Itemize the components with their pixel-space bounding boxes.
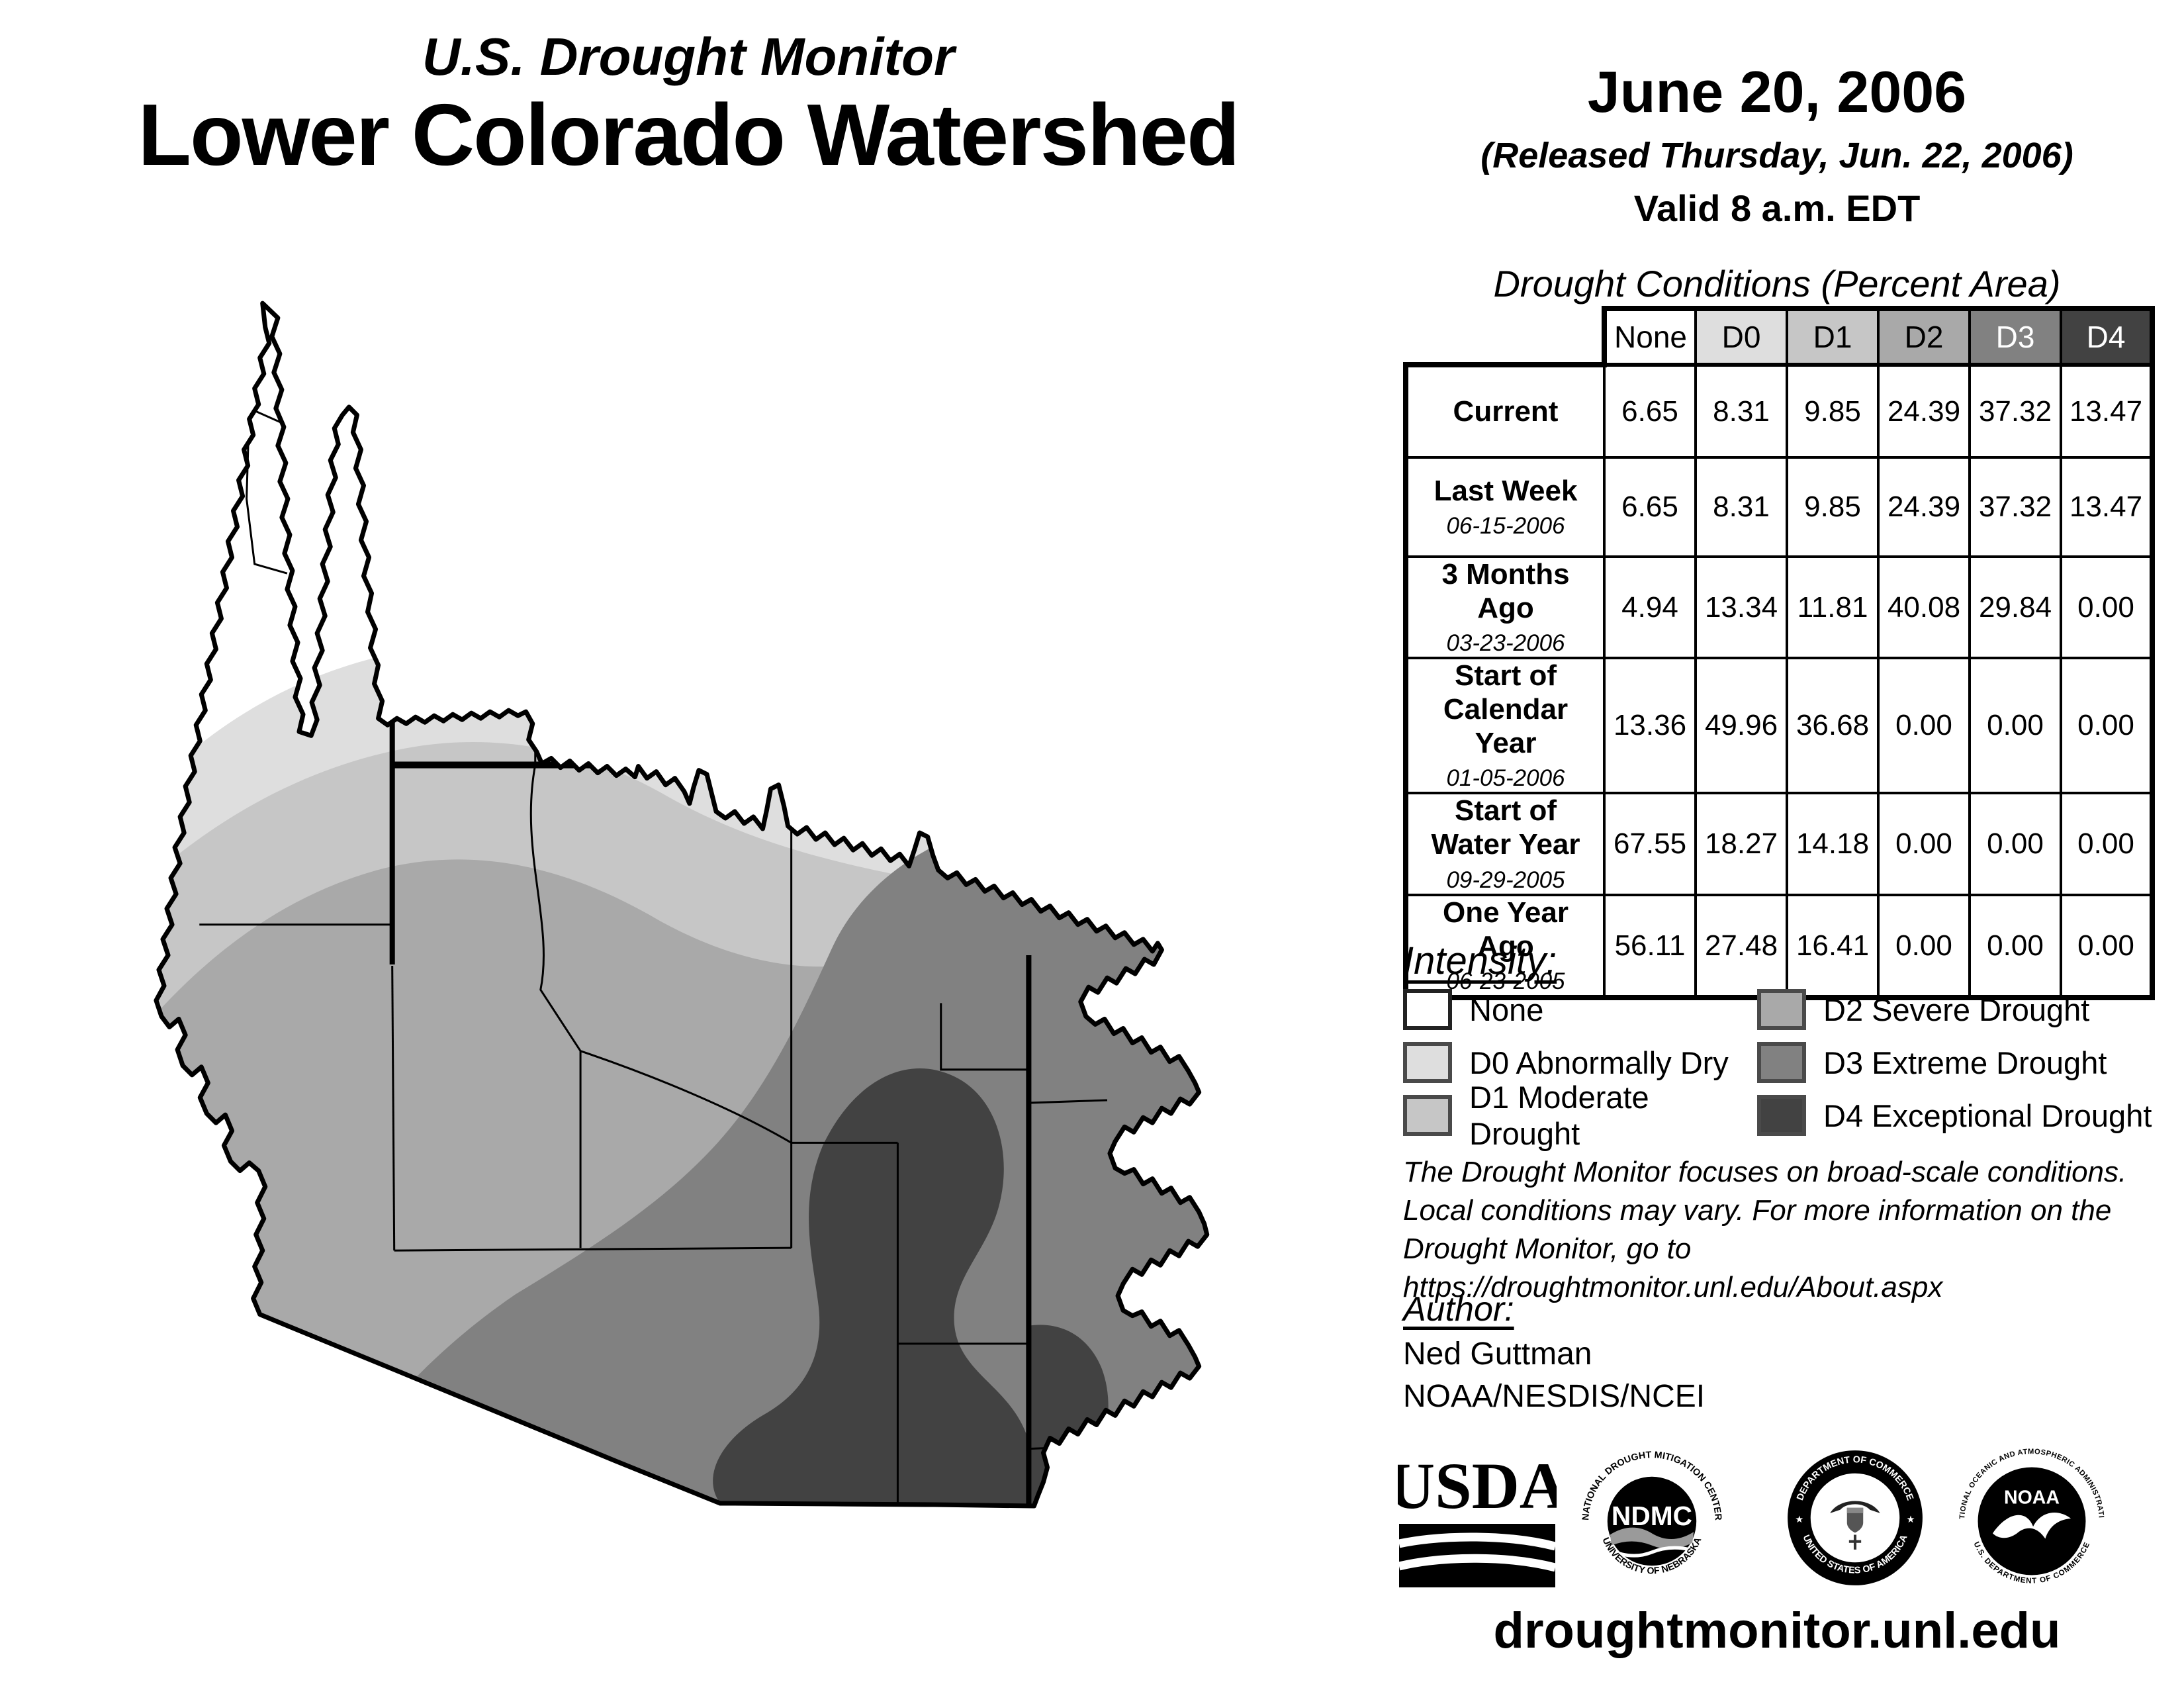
row-label: Start of Calendar Year01-05-2006 — [1406, 658, 1604, 793]
legend-heading: Intensity: — [1403, 939, 1557, 983]
value-cell: 24.39 — [1878, 457, 1970, 557]
value-cell: 0.00 — [2061, 557, 2152, 658]
d1-swatch — [1403, 1095, 1452, 1136]
value-cell: 8.31 — [1696, 457, 1787, 557]
value-cell: 13.47 — [2061, 365, 2152, 457]
legend-label: None — [1469, 992, 1543, 1028]
drought-map — [149, 285, 1261, 1635]
value-cell: 0.00 — [1970, 658, 2061, 793]
page-title: Lower Colorado Watershed — [0, 86, 1377, 184]
value-cell: 11.81 — [1787, 557, 1878, 658]
value-cell: 9.85 — [1787, 365, 1878, 457]
d0-swatch — [1403, 1042, 1452, 1083]
d2-swatch — [1757, 989, 1806, 1030]
legend-label: D4 Exceptional Drought — [1823, 1098, 2152, 1134]
value-cell: 37.32 — [1970, 457, 2061, 557]
d4-swatch — [1757, 1095, 1806, 1136]
row-label: 3 Months Ago03-23-2006 — [1406, 557, 1604, 658]
column-header-d4: D4 — [2061, 308, 2152, 365]
table-corner-cell — [1406, 308, 1604, 365]
legend-label: D2 Severe Drought — [1823, 992, 2089, 1028]
doc-star-left: ★ — [1795, 1515, 1803, 1525]
value-cell: 0.00 — [1878, 895, 1970, 998]
none-swatch — [1403, 989, 1452, 1030]
value-cell: 8.31 — [1696, 365, 1787, 457]
value-cell: 27.48 — [1696, 895, 1787, 998]
value-cell: 49.96 — [1696, 658, 1787, 793]
row-label: Current — [1406, 365, 1604, 457]
value-cell: 6.65 — [1604, 457, 1696, 557]
column-header-d2: D2 — [1878, 308, 1970, 365]
legend-item-d2: D2 Severe Drought — [1757, 988, 2171, 1031]
legend-item-d3: D3 Extreme Drought — [1757, 1041, 2171, 1084]
value-cell: 13.47 — [2061, 457, 2152, 557]
drought-conditions-table: None D0 D1 D2 D3 D4 Current 6.65 8.31 9.… — [1403, 306, 2155, 1000]
value-cell: 0.00 — [1878, 658, 1970, 793]
intensity-legend: None D0 Abnormally Dry D1 Moderate Droug… — [1403, 988, 2171, 1137]
table-row-3-months-ago: 3 Months Ago03-23-2006 4.94 13.34 11.81 … — [1406, 557, 2152, 658]
ndmc-logo: NDMC NATIONAL DROUGHT MITIGATION CENTER … — [1578, 1447, 1726, 1595]
legend-item-d0: D0 Abnormally Dry — [1403, 1041, 1757, 1084]
value-cell: 56.11 — [1604, 895, 1696, 998]
date-block: June 20, 2006 (Released Thursday, Jun. 2… — [1390, 58, 2164, 230]
row-label: Last Week06-15-2006 — [1406, 457, 1604, 557]
value-cell: 13.34 — [1696, 557, 1787, 658]
released-date: (Released Thursday, Jun. 22, 2006) — [1390, 135, 2164, 176]
value-cell: 36.68 — [1787, 658, 1878, 793]
column-header-d0: D0 — [1696, 308, 1787, 365]
column-header-d1: D1 — [1787, 308, 1878, 365]
drought-monitor-url[interactable]: droughtmonitor.unl.edu — [1403, 1602, 2151, 1660]
column-header-d3: D3 — [1970, 308, 2061, 365]
doc-star-right: ★ — [1906, 1515, 1915, 1525]
map-date: June 20, 2006 — [1390, 58, 2164, 126]
value-cell: 0.00 — [1970, 895, 2061, 998]
column-header-none: None — [1604, 308, 1696, 365]
row-date: 09-29-2005 — [1414, 867, 1598, 894]
legend-item-none: None — [1403, 988, 1757, 1031]
value-cell: 14.18 — [1787, 793, 1878, 894]
value-cell: 67.55 — [1604, 793, 1696, 894]
usda-logo: USDA — [1398, 1447, 1557, 1593]
value-cell: 16.41 — [1787, 895, 1878, 998]
value-cell: 37.32 — [1970, 365, 2061, 457]
legend-item-d4: D4 Exceptional Drought — [1757, 1094, 2171, 1137]
value-cell: 29.84 — [1970, 557, 2061, 658]
value-cell: 0.00 — [1970, 793, 2061, 894]
author-heading: Author: — [1403, 1289, 1514, 1329]
ndmc-wordmark: NDMC — [1612, 1501, 1692, 1531]
legend-label: D3 Extreme Drought — [1823, 1045, 2107, 1081]
table-title: Drought Conditions (Percent Area) — [1403, 262, 2151, 305]
row-date: 06-15-2006 — [1414, 513, 1598, 539]
legend-label: D1 Moderate Drought — [1469, 1079, 1757, 1152]
row-date: 01-05-2006 — [1414, 765, 1598, 792]
row-label: Start of Water Year09-29-2005 — [1406, 793, 1604, 894]
value-cell: 0.00 — [2061, 793, 2152, 894]
drought-bands — [149, 285, 1261, 1635]
value-cell: 4.94 — [1604, 557, 1696, 658]
d3-swatch — [1757, 1042, 1806, 1083]
valid-time: Valid 8 a.m. EDT — [1390, 187, 2164, 230]
value-cell: 9.85 — [1787, 457, 1878, 557]
value-cell: 0.00 — [1878, 793, 1970, 894]
author-name: Ned Guttman — [1403, 1336, 1592, 1372]
report-kicker: U.S. Drought Monitor — [0, 28, 1377, 86]
disclaimer-text: The Drought Monitor focuses on broad-sca… — [1403, 1153, 2184, 1307]
usda-wordmark: USDA — [1398, 1449, 1557, 1523]
commerce-seal-logo: DEPARTMENT OF COMMERCE UNITED STATES OF … — [1784, 1447, 1926, 1589]
table-row-current: Current 6.65 8.31 9.85 24.39 37.32 13.47 — [1406, 365, 2152, 457]
value-cell: 6.65 — [1604, 365, 1696, 457]
value-cell: 0.00 — [2061, 658, 2152, 793]
title-block: U.S. Drought Monitor Lower Colorado Wate… — [0, 28, 1377, 184]
noaa-wordmark: NOAA — [2004, 1487, 2060, 1509]
value-cell: 13.36 — [1604, 658, 1696, 793]
value-cell: 40.08 — [1878, 557, 1970, 658]
value-cell: 24.39 — [1878, 365, 1970, 457]
author-organization: NOAA/NESDIS/NCEI — [1403, 1378, 1705, 1415]
legend-label: D0 Abnormally Dry — [1469, 1045, 1729, 1081]
row-date: 03-23-2006 — [1414, 630, 1598, 657]
table-row-start-water-year: Start of Water Year09-29-2005 67.55 18.2… — [1406, 793, 2152, 894]
value-cell: 18.27 — [1696, 793, 1787, 894]
table-row-start-calendar-year: Start of Calendar Year01-05-2006 13.36 4… — [1406, 658, 2152, 793]
legend-item-d1: D1 Moderate Drought — [1403, 1094, 1757, 1137]
value-cell: 0.00 — [2061, 895, 2152, 998]
noaa-logo: NOAA NATIONAL OCEANIC AND ATMOSPHERIC AD… — [1958, 1447, 2106, 1595]
table-row-last-week: Last Week06-15-2006 6.65 8.31 9.85 24.39… — [1406, 457, 2152, 557]
